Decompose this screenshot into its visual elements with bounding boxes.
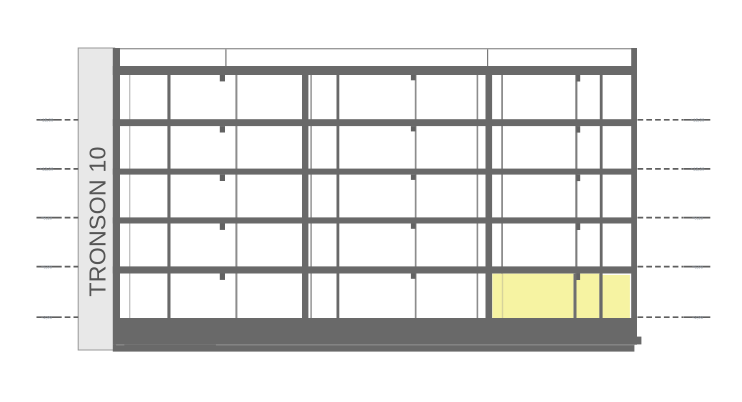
svg-text:TRONSON 10: TRONSON 10 bbox=[84, 146, 110, 296]
svg-text:+9,10: +9,10 bbox=[41, 215, 53, 220]
svg-text:+9,10: +9,10 bbox=[692, 215, 704, 220]
svg-text:+15,30: +15,30 bbox=[691, 118, 705, 123]
svg-text:+12,20: +12,20 bbox=[691, 167, 705, 172]
svg-text:+6,00: +6,00 bbox=[41, 264, 53, 269]
svg-text:+12,20: +12,20 bbox=[40, 167, 54, 172]
svg-text:+6,00: +6,00 bbox=[692, 264, 704, 269]
svg-text:+15,30: +15,30 bbox=[40, 118, 54, 123]
svg-text:+2,90: +2,90 bbox=[692, 315, 704, 320]
svg-text:+2,90: +2,90 bbox=[41, 315, 53, 320]
